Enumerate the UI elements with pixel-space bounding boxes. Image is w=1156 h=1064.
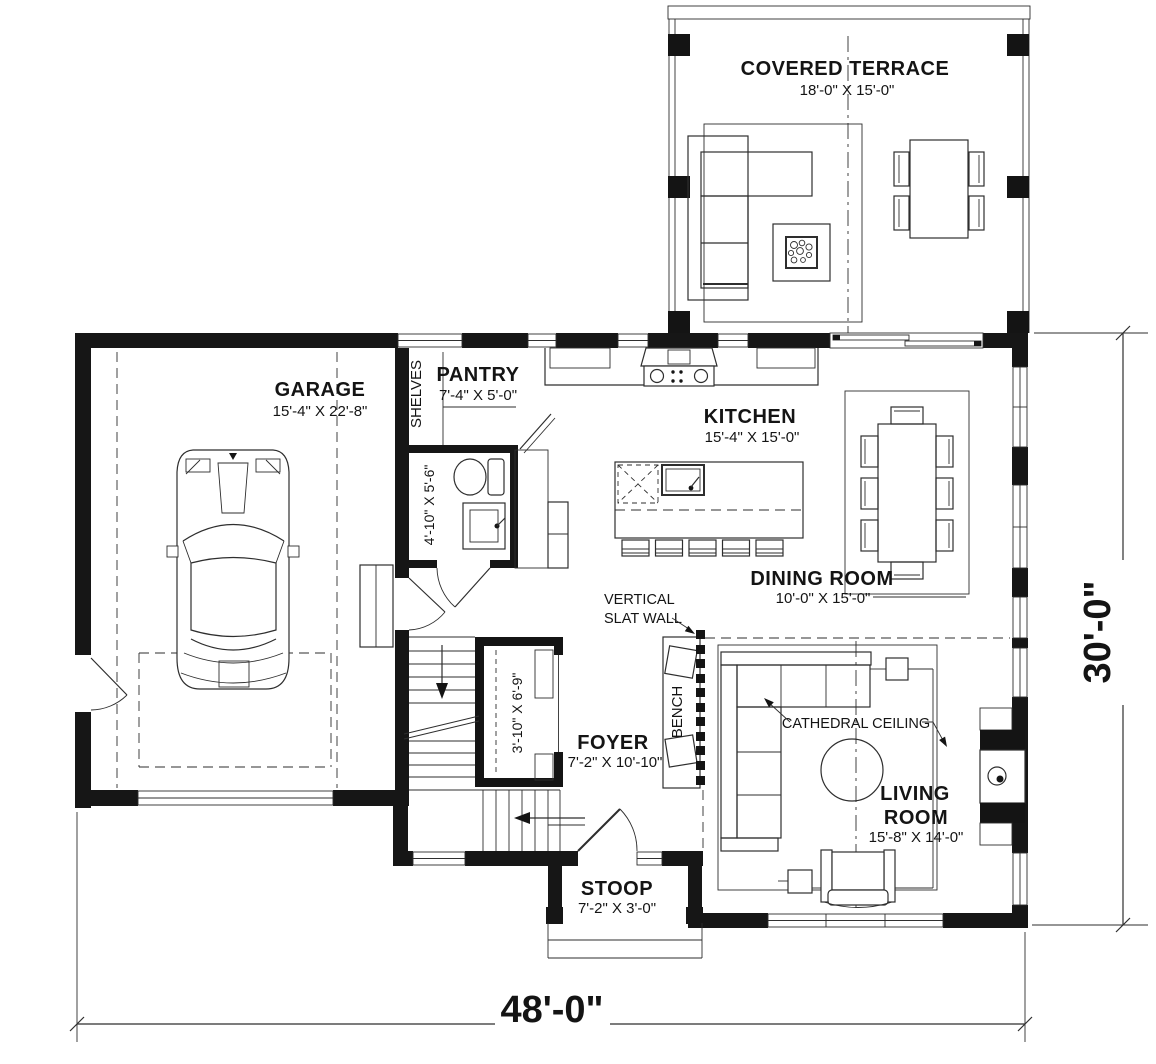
overall-width-dim: 48'-0" (500, 989, 603, 1031)
stoop-dim: 7'-2" X 3'-0" (578, 900, 656, 917)
stoop: STOOP 7'-2" X 3'-0" (548, 878, 702, 958)
front-door (578, 809, 637, 851)
window (637, 852, 662, 865)
window (413, 852, 465, 865)
foyer-label: FOYER (577, 732, 648, 754)
island-stools (622, 540, 783, 556)
window (768, 914, 943, 927)
bathroom-door (437, 568, 490, 607)
living-label-line1: LIVING (880, 783, 950, 805)
tall-cabinets (515, 450, 548, 568)
kitchen-dim: 15'-4" X 15'-0" (705, 429, 800, 446)
dining-chairs (861, 407, 953, 579)
garage-cabinet (360, 565, 393, 647)
bathroom: 4'-10" X 5'-6" (421, 459, 505, 549)
bathroom-dim: 4'-10" X 5'-6" (421, 465, 437, 546)
fire-pit-table (773, 224, 830, 281)
outdoor-sofa (688, 136, 812, 300)
garage-side-door (91, 658, 127, 710)
living-dim: 15'-8" X 14'-0" (869, 829, 964, 846)
closet-dim: 3'-10" X 6'-9" (509, 673, 525, 754)
dining-table (878, 424, 936, 562)
outdoor-dining-table (894, 140, 984, 238)
sliding-patio-door (830, 333, 983, 348)
shelves-label: SHELVES (408, 360, 425, 428)
kitchen-label: KITCHEN (704, 406, 796, 428)
garage: GARAGE 15'-4" X 22'-8" (117, 352, 393, 788)
dining-label: DINING ROOM (750, 568, 893, 590)
range-and-hood (641, 348, 717, 386)
slat-wall-note-line1: VERTICAL (604, 592, 675, 608)
overall-depth-dim: 30'-0" (1077, 580, 1119, 683)
vertical-slat-wall (696, 630, 705, 785)
floor-plan-canvas: COVERED TERRACE 18'-0" X 15'-0" (0, 0, 1156, 1064)
garage-label: GARAGE (275, 379, 366, 401)
living-room: CATHEDRAL CEILING LIVING ROOM 15'-8" X 1… (705, 638, 1025, 908)
covered-terrace: COVERED TERRACE 18'-0" X 15'-0" (668, 6, 1030, 333)
window (1013, 853, 1027, 905)
garage-door (138, 791, 333, 805)
armchair (821, 850, 895, 908)
window (1013, 485, 1027, 568)
living-label-line2: ROOM (884, 807, 948, 829)
fridge (548, 502, 568, 568)
stoop-label: STOOP (581, 878, 653, 900)
pantry-dim: 7'-4" X 5'-0" (439, 387, 517, 404)
pantry-label: PANTRY (437, 364, 520, 386)
window (1013, 367, 1027, 447)
window (398, 334, 462, 347)
coffee-table (821, 739, 883, 801)
kitchen: KITCHEN 15'-4" X 15'-0" (515, 348, 818, 568)
floor-plan-drawing: COVERED TERRACE 18'-0" X 15'-0" (0, 0, 1156, 1064)
window (618, 334, 648, 347)
closet: 3'-10" X 6'-9" (475, 637, 563, 787)
car (167, 450, 299, 689)
pillow (665, 735, 697, 767)
pantry: SHELVES PANTRY 7'-4" X 5'-0" (408, 352, 555, 453)
window (1013, 597, 1027, 638)
cathedral-ceiling-note: CATHEDRAL CEILING (782, 716, 930, 732)
sectional-sofa (721, 652, 871, 851)
garage-dim: 15'-4" X 22'-8" (273, 403, 368, 420)
slat-wall-note-line2: SLAT WALL (604, 611, 682, 627)
garage-to-hall-door (409, 578, 445, 630)
terrace-label: COVERED TERRACE (741, 58, 950, 80)
bench-label: BENCH (669, 686, 686, 739)
window (528, 334, 556, 347)
pillow (665, 646, 697, 678)
terrace-rug (704, 124, 862, 322)
foyer-dim: 7'-2" X 10'-10" (568, 754, 663, 771)
kitchen-island (615, 462, 803, 538)
terrace-dim: 18'-0" X 15'-0" (800, 82, 895, 99)
window (1013, 648, 1027, 697)
dining-dim: 10'-0" X 15'-0" (776, 590, 871, 607)
window (718, 334, 748, 347)
